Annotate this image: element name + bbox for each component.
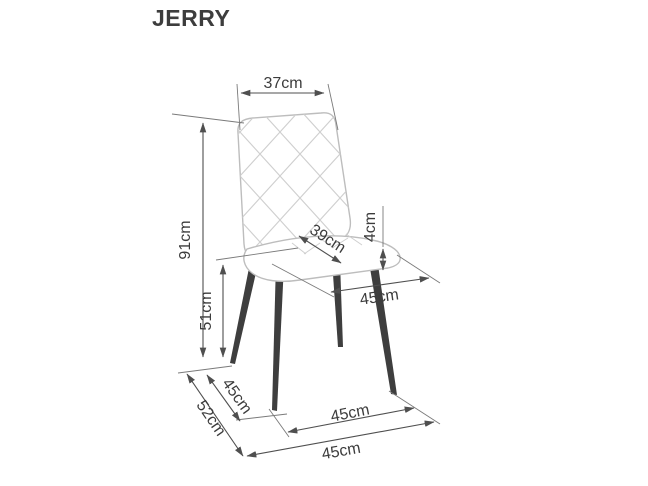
chair-dimension-diagram: 37cm 91cm 51cm 39cm 4cm 45cm 45cm: [0, 0, 648, 486]
dimension-label: 4cm: [362, 212, 379, 242]
dimension-label: 91cm: [177, 220, 194, 259]
chair-leg-front-left: [272, 262, 284, 411]
dim-front-leg-span: 45cm: [269, 391, 440, 437]
dimension-label: 51cm: [198, 291, 215, 330]
dimension-label: 45cm: [218, 376, 255, 418]
floor-reference-line: [178, 366, 232, 373]
dimension-label: 52cm: [193, 398, 229, 440]
dimension-label: 45cm: [359, 286, 400, 308]
chair-illustration: [230, 113, 400, 411]
dimension-label: 37cm: [263, 75, 302, 92]
chair-leg-front-right: [368, 256, 397, 395]
dim-base-width: 45cm: [247, 422, 434, 463]
dimension-label: 45cm: [329, 402, 371, 426]
dimension-label: 45cm: [320, 440, 361, 464]
